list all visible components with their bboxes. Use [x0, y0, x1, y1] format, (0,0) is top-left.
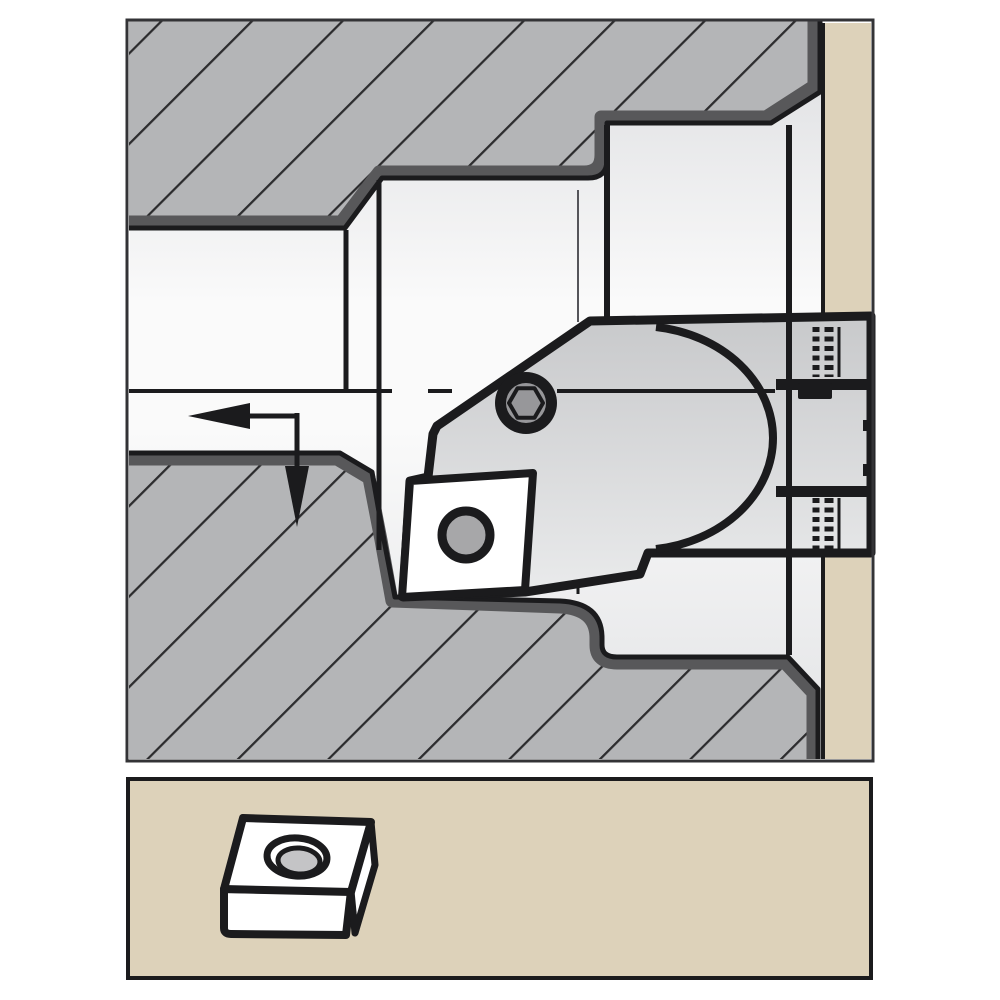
insert-front-face	[224, 889, 351, 935]
insert-hole	[442, 511, 490, 559]
shank-key-nub	[798, 383, 832, 399]
clamp-screw	[495, 372, 557, 434]
insert-detail	[224, 818, 375, 935]
insert-detail-hole	[277, 847, 321, 876]
insert-section	[402, 473, 533, 597]
insert-detail-view	[128, 779, 871, 978]
technical-diagram	[0, 0, 1000, 1000]
main-section-view	[127, 20, 873, 761]
shank-rib-lower	[776, 486, 872, 497]
shank-edge-tick-lower	[863, 464, 872, 476]
shank-edge-tick-upper	[863, 420, 872, 431]
illustration-page	[0, 0, 1000, 1000]
